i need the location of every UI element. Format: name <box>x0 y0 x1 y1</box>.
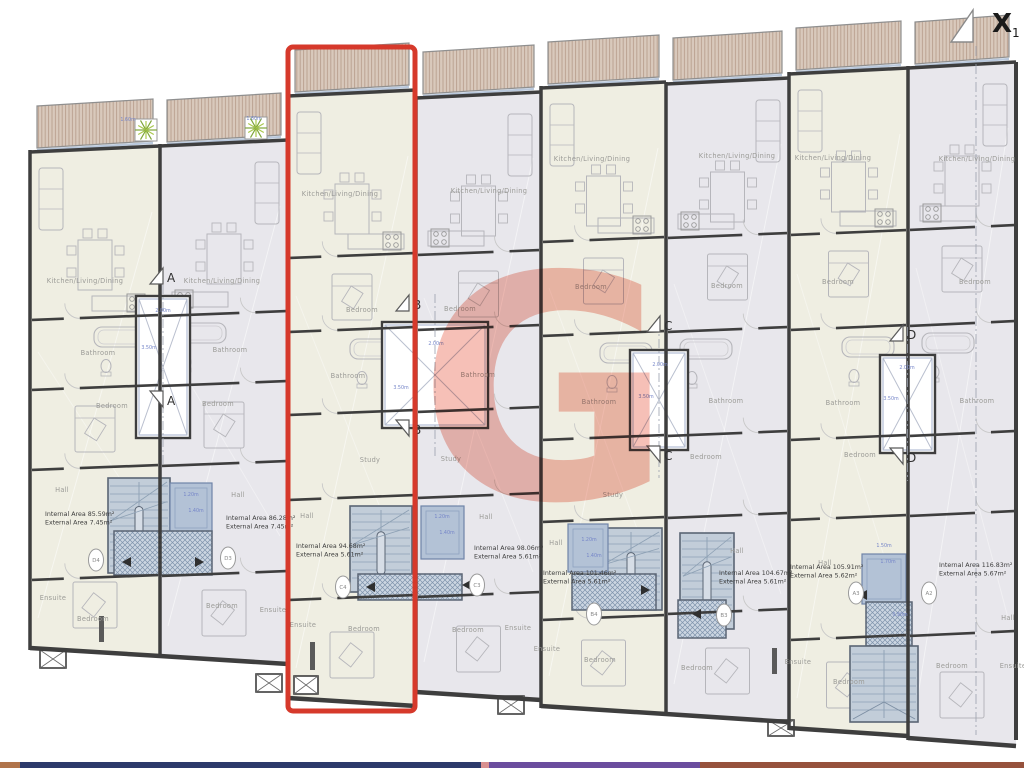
bottom-strip-segment <box>20 762 481 768</box>
room-label: Bedroom <box>936 662 968 670</box>
section-marker-letter: A <box>167 394 176 408</box>
room-label: Kitchen/Living/Dining <box>451 187 527 195</box>
interior-wall <box>791 639 820 640</box>
room-label: Kitchen/Living/Dining <box>47 277 123 285</box>
room-label: Kitchen/Living/Dining <box>699 152 775 160</box>
door-tag-label: A2 <box>925 591 932 597</box>
room-label: Bedroom <box>206 602 238 610</box>
section-marker-letter: D <box>907 328 916 342</box>
bottom-strip-segment <box>0 762 20 768</box>
interior-wall <box>758 431 787 432</box>
terrace <box>796 21 901 70</box>
room-label: Bedroom <box>202 400 234 408</box>
room-label: Ensuite <box>785 658 812 666</box>
interior-wall <box>991 511 1014 512</box>
area-label-internal: Internal Area 94.68m² <box>296 543 366 550</box>
room-label: Kitchen/Living/Dining <box>939 155 1015 163</box>
room-label: Ensuite <box>290 621 317 629</box>
room-label: Hall <box>55 486 69 494</box>
room-label: Bedroom <box>844 451 876 459</box>
room-label: Kitchen/Living/Dining <box>795 154 871 162</box>
room-label: Bedroom <box>96 402 128 410</box>
room-label: Bedroom <box>77 615 109 623</box>
dimension-label: 3.50m <box>393 385 409 391</box>
interior-wall <box>791 439 820 440</box>
section-ref-subscript: 1 <box>1012 26 1020 40</box>
dimension-label: 2.00m <box>899 365 915 371</box>
room-label: Bathroom <box>960 397 995 405</box>
area-label-internal: Internal Area 86.28m² <box>226 515 296 522</box>
door-tag-label: D4 <box>92 558 100 564</box>
dimension-label: 1.50m <box>876 543 892 549</box>
door-tag-label: D3 <box>224 556 232 562</box>
room-label: Bathroom <box>213 346 248 354</box>
bottom-color-strip <box>0 762 1024 768</box>
area-label-external: External Area 5.61m² <box>719 579 787 586</box>
dimension-label: 1.60m <box>246 116 262 122</box>
room-label: Bedroom <box>584 656 616 664</box>
bottom-strip-segment <box>700 762 1024 768</box>
stair-newel <box>377 532 385 575</box>
door-tag-label: C3 <box>473 583 480 589</box>
room-label: Ensuite <box>260 606 287 614</box>
area-label-external: External Area 5.61m² <box>296 552 364 559</box>
interior-wall <box>510 592 540 593</box>
interior-wall <box>290 257 321 258</box>
room-label: Study <box>360 456 381 464</box>
interior-wall <box>32 319 64 320</box>
interior-wall <box>758 327 787 328</box>
room-label: Bedroom <box>833 678 865 686</box>
section-ref-letter: X <box>992 9 1012 39</box>
skylight-shaft <box>170 483 212 533</box>
bottom-strip-segment <box>481 762 489 768</box>
door-leaf <box>310 642 315 670</box>
dimension-label: 0.90m <box>892 612 908 618</box>
interior-wall <box>255 461 286 462</box>
room-label: Bathroom <box>826 399 861 407</box>
room-label: Ensuite <box>1000 662 1024 670</box>
room-label: Kitchen/Living/Dining <box>302 190 378 198</box>
interior-wall <box>32 579 64 580</box>
interior-wall <box>255 311 286 312</box>
room-label: Kitchen/Living/Dining <box>554 155 630 163</box>
landing-hatch <box>866 602 912 646</box>
interior-wall <box>791 329 820 330</box>
room-label: Kitchen/Living/Dining <box>184 277 260 285</box>
door-leaf <box>772 648 777 674</box>
interior-wall <box>32 389 64 390</box>
area-label-external: External Area 5.62m² <box>790 573 858 580</box>
interior-wall <box>290 414 321 415</box>
room-label: Ensuite <box>534 645 561 653</box>
terrace <box>673 31 782 80</box>
dimension-label: 1.60m <box>120 117 136 123</box>
area-label-internal: Internal Area 105.91m² <box>790 564 864 571</box>
interior-wall <box>758 609 787 610</box>
area-label-internal: Internal Area 104.67m² <box>719 570 793 577</box>
interior-wall <box>991 225 1014 226</box>
door-tag-label: B4 <box>590 612 598 618</box>
interior-wall <box>791 519 820 520</box>
interior-wall <box>290 331 321 332</box>
floor-plan-page: AABBCCDDD4D3C4C3B4B3A3A2 Kitchen/Living/… <box>0 0 1024 768</box>
interior-wall <box>791 234 820 235</box>
dimension-label: 1.70m <box>880 559 896 565</box>
interior-wall <box>991 431 1014 432</box>
room-label: Bedroom <box>690 453 722 461</box>
room-label: Bathroom <box>709 397 744 405</box>
room-label: Hall <box>300 512 314 520</box>
door-tag-label: A3 <box>852 591 859 597</box>
room-label: Bedroom <box>452 626 484 634</box>
interior-wall <box>758 233 787 234</box>
interior-wall <box>290 599 321 600</box>
room-label: Bathroom <box>81 349 116 357</box>
interior-wall <box>255 571 286 572</box>
room-label: Hall <box>1001 614 1015 622</box>
room-label: Bedroom <box>822 278 854 286</box>
room-label: Bathroom <box>331 372 366 380</box>
interior-wall <box>255 381 286 382</box>
room-label: Bedroom <box>681 664 713 672</box>
interior-wall <box>543 619 574 620</box>
bottom-strip-segment <box>489 762 700 768</box>
room-label: Hall <box>231 491 245 499</box>
dimension-label: 2.00m <box>155 308 171 314</box>
door-tag-label: C4 <box>339 585 347 591</box>
room-label: Ensuite <box>40 594 67 602</box>
dimension-label: 3.50m <box>141 345 157 351</box>
room-label: Bedroom <box>959 278 991 286</box>
interior-wall <box>290 499 321 500</box>
door-tag-label: B3 <box>720 613 727 619</box>
section-marker-letter: D <box>907 451 916 465</box>
room-label: Hall <box>730 547 744 555</box>
room-label: Bedroom <box>348 625 380 633</box>
area-label-internal: Internal Area 85.59m² <box>45 511 115 518</box>
floor-plan-drawing: AABBCCDDD4D3C4C3B4B3A3A2 Kitchen/Living/… <box>0 0 1024 768</box>
room-label: Bedroom <box>346 306 378 314</box>
room-label: Bedroom <box>711 282 743 290</box>
interior-wall <box>991 321 1014 322</box>
terrace <box>423 45 534 94</box>
area-label-external: External Area 5.61m² <box>543 579 611 586</box>
area-label-external: External Area 5.67m² <box>939 571 1007 578</box>
area-label-external: External Area 7.45m² <box>45 520 113 527</box>
dimension-label: 3.50m <box>883 396 899 402</box>
room-label: Ensuite <box>505 624 532 632</box>
landing-hatch <box>114 531 212 575</box>
interior-wall <box>758 513 787 514</box>
terrace <box>548 35 659 84</box>
watermark-letter: G <box>418 211 672 572</box>
interior-wall <box>991 631 1014 632</box>
interior-wall <box>32 469 64 470</box>
area-label-internal: Internal Area 116.83m² <box>939 562 1013 569</box>
terrace <box>295 43 409 92</box>
section-marker-letter: A <box>167 271 176 285</box>
area-label-external: External Area 7.45m² <box>226 524 294 531</box>
dimension-label: 1.40m <box>188 508 204 514</box>
dimension-label: 1.20m <box>183 492 199 498</box>
